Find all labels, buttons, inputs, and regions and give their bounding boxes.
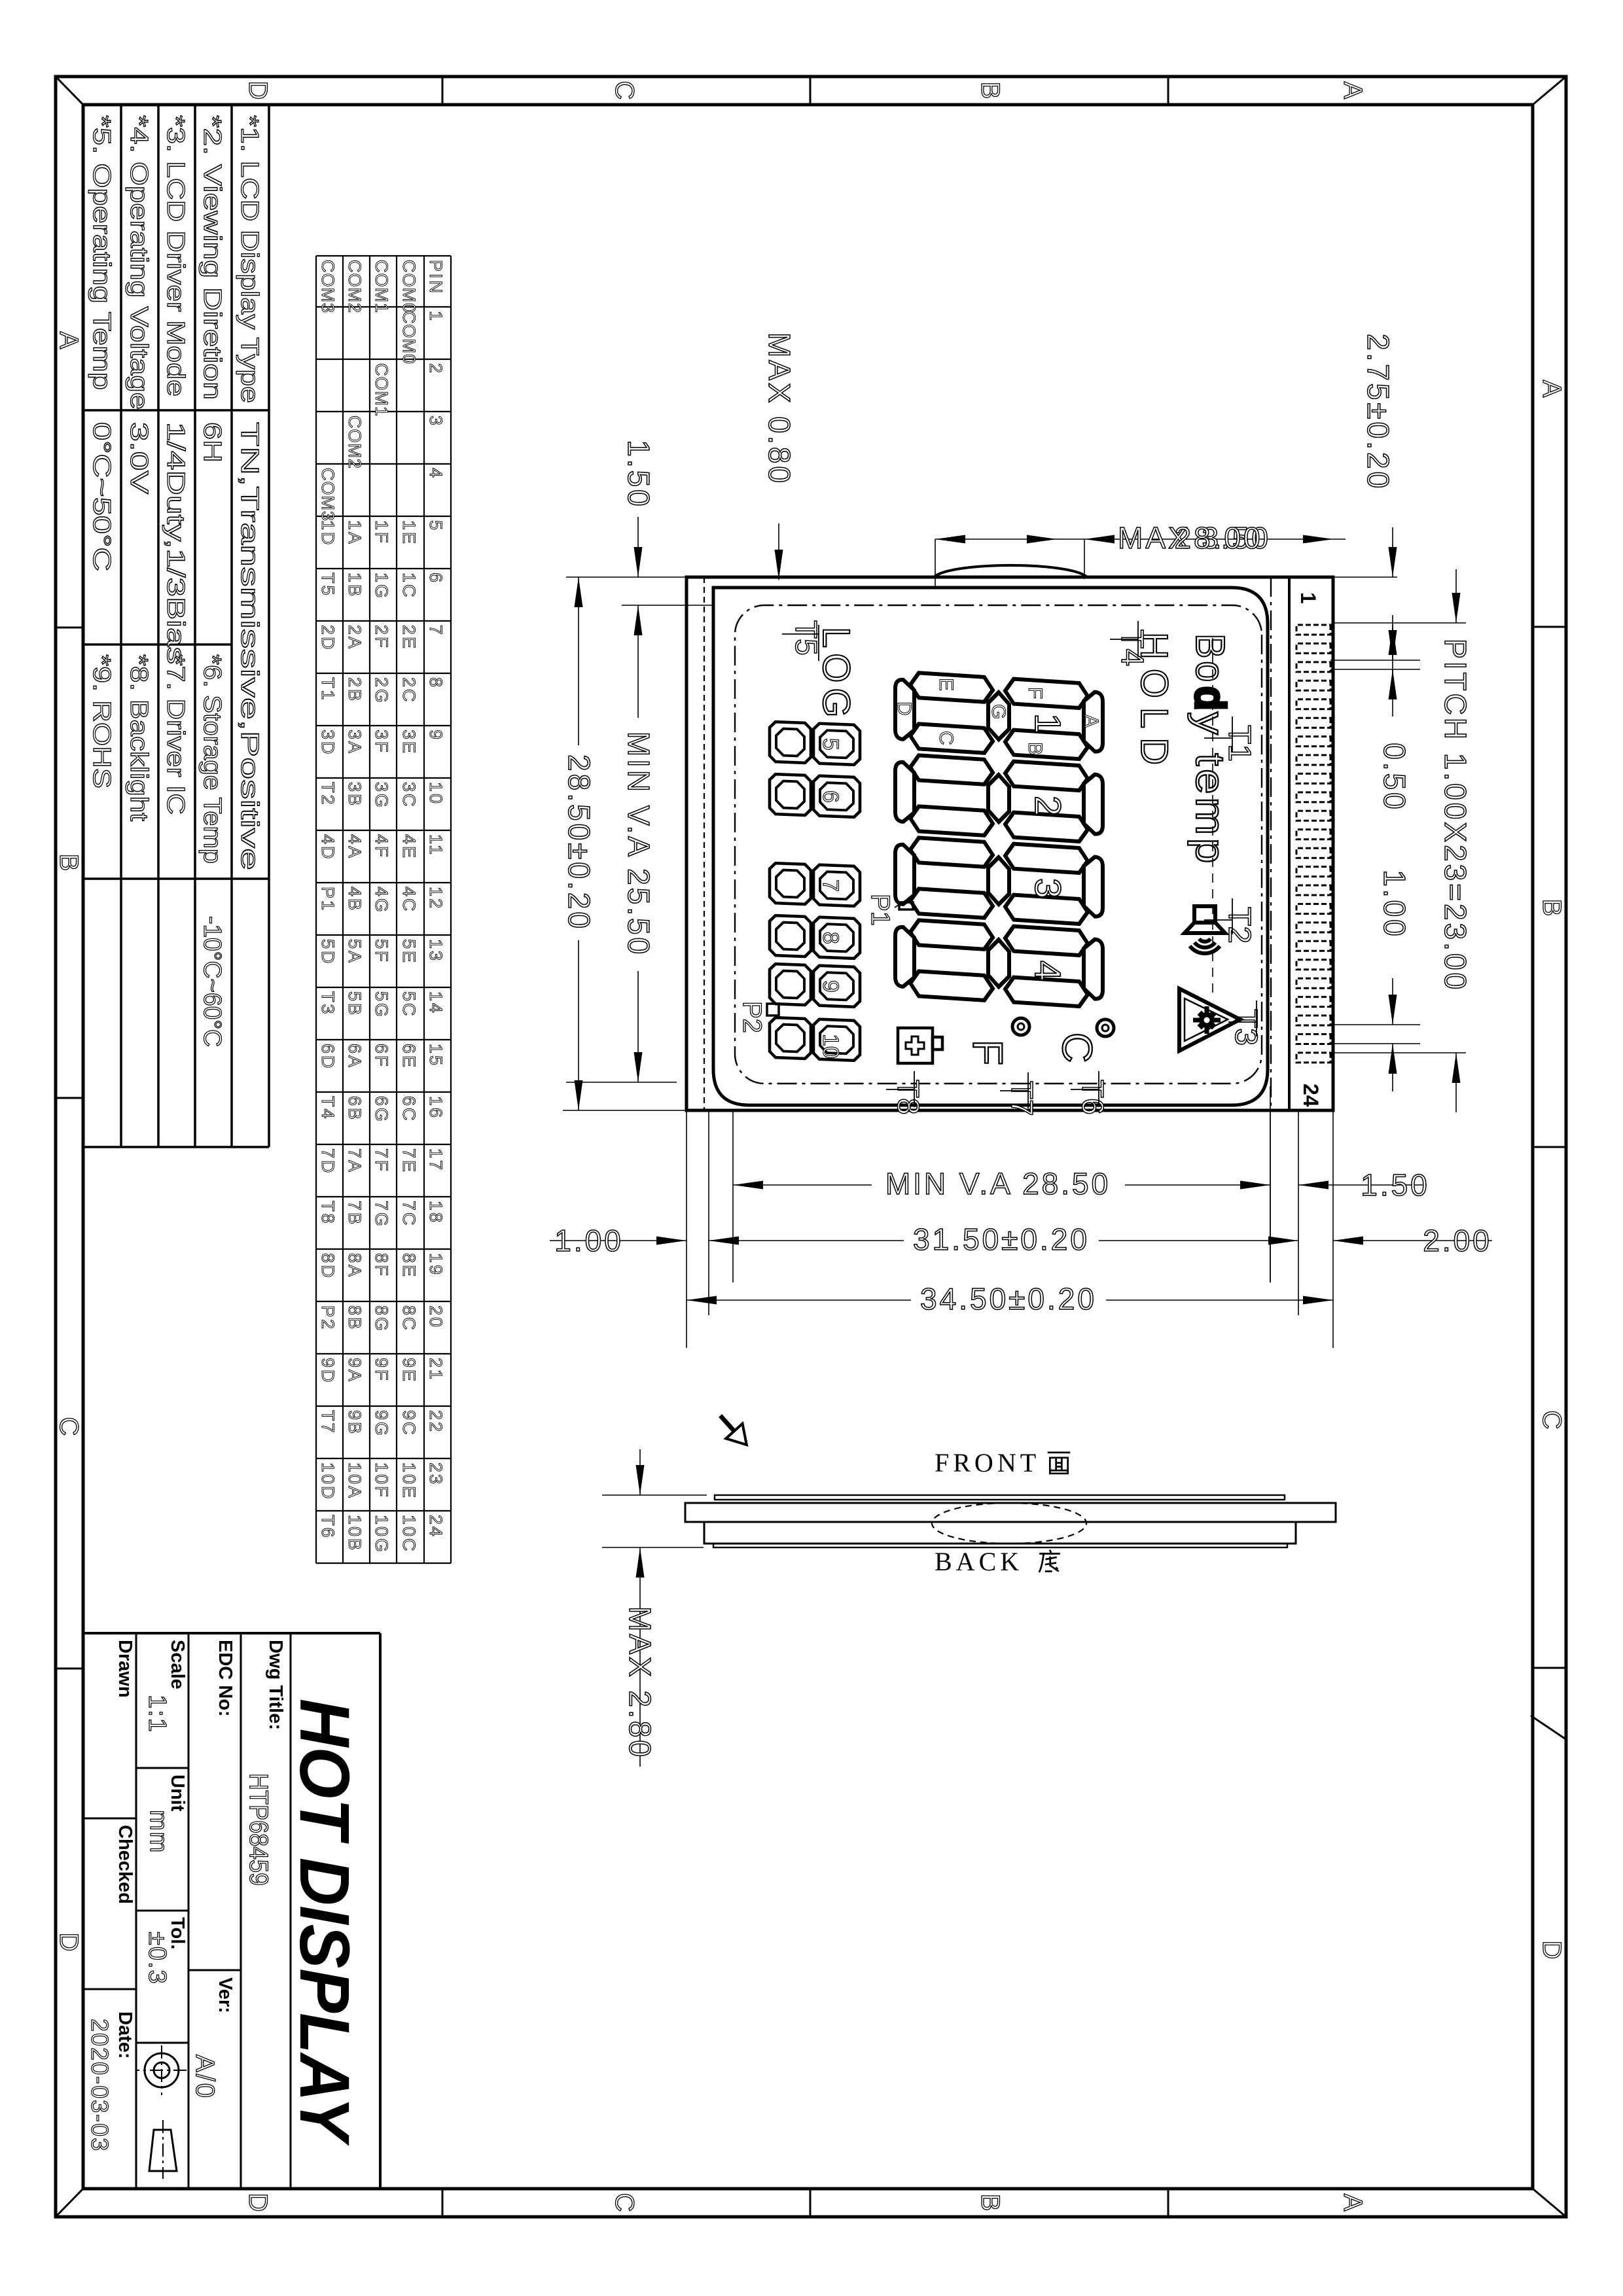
- svg-text:*5. Operating Temp: *5. Operating Temp: [88, 115, 115, 390]
- svg-text:4F: 4F: [372, 834, 391, 859]
- svg-text:3F: 3F: [372, 730, 391, 754]
- svg-text:4G: 4G: [372, 887, 391, 914]
- svg-text:COM2: COM2: [345, 260, 365, 313]
- svg-text:7G: 7G: [372, 1201, 391, 1228]
- svg-text:A/0: A/0: [190, 2055, 219, 2100]
- svg-text:T1: T1: [318, 677, 338, 702]
- svg-text:34.50±0.20: 34.50±0.20: [920, 1282, 1097, 1316]
- svg-text:*3. LCD Driver Mode: *3. LCD Driver Mode: [162, 115, 189, 397]
- svg-text:6H: 6H: [198, 422, 226, 463]
- svg-text:T7: T7: [1005, 1081, 1039, 1116]
- svg-text:3: 3: [1027, 878, 1069, 898]
- svg-text:31.50±0.20: 31.50±0.20: [913, 1222, 1090, 1256]
- svg-text:1: 1: [426, 311, 446, 323]
- svg-text:15: 15: [426, 1044, 446, 1067]
- svg-text:mm: mm: [145, 1810, 172, 1854]
- svg-text:B: B: [1537, 899, 1566, 917]
- svg-text:5: 5: [818, 738, 843, 751]
- svg-text:19: 19: [426, 1253, 446, 1277]
- svg-text:HTP68459: HTP68459: [244, 1773, 273, 1886]
- svg-text:1A: 1A: [345, 520, 365, 546]
- svg-text:MIN V.A 25.50: MIN V.A 25.50: [622, 732, 656, 957]
- svg-text:Drawn: Drawn: [115, 1640, 135, 1698]
- svg-text:COM0: COM0: [399, 311, 419, 364]
- svg-text:Ver:: Ver:: [215, 1977, 236, 2013]
- svg-text:10: 10: [426, 782, 446, 805]
- svg-text:24: 24: [1299, 1084, 1323, 1107]
- svg-text:EDC No:: EDC No:: [215, 1640, 236, 1717]
- svg-text:2: 2: [426, 363, 446, 375]
- svg-text:4B: 4B: [345, 887, 365, 912]
- svg-text:1F: 1F: [372, 520, 391, 545]
- svg-text:T5: T5: [318, 573, 338, 597]
- svg-text:20: 20: [426, 1305, 446, 1329]
- svg-text:0°C~50°C: 0°C~50°C: [88, 422, 115, 571]
- svg-text:9G: 9G: [372, 1410, 391, 1438]
- svg-text:MAX 2.80: MAX 2.80: [623, 1606, 657, 1759]
- svg-text:2E: 2E: [399, 625, 419, 650]
- svg-text:HOT DISPLAY: HOT DISPLAY: [285, 1699, 365, 2146]
- svg-text:T3: T3: [318, 991, 338, 1016]
- svg-text:T7: T7: [318, 1410, 338, 1435]
- svg-text:*8. Backlight: *8. Backlight: [125, 654, 152, 822]
- svg-text:6G: 6G: [372, 1096, 391, 1123]
- svg-text:24: 24: [426, 1515, 446, 1538]
- svg-text:7A: 7A: [345, 1148, 365, 1174]
- svg-text:1.00: 1.00: [1378, 870, 1412, 939]
- svg-text:COM0: COM0: [399, 260, 419, 313]
- svg-text:2G: 2G: [372, 677, 391, 705]
- svg-text:4E: 4E: [399, 834, 419, 860]
- svg-text:D: D: [243, 81, 272, 100]
- svg-text:8A: 8A: [345, 1253, 365, 1279]
- svg-text:16: 16: [426, 1096, 446, 1120]
- svg-text:T2: T2: [318, 782, 338, 807]
- svg-text:Bo: Bo: [1187, 633, 1232, 684]
- svg-text:B: B: [976, 82, 1005, 99]
- svg-text:28.50±0.20: 28.50±0.20: [562, 754, 596, 931]
- svg-text:7: 7: [818, 879, 843, 892]
- svg-text:5B: 5B: [345, 991, 365, 1017]
- svg-text:10A: 10A: [345, 1462, 365, 1500]
- svg-text:5E: 5E: [399, 939, 419, 964]
- svg-text:1.50: 1.50: [1361, 1168, 1430, 1202]
- svg-text:3E: 3E: [399, 730, 419, 755]
- svg-text:P2: P2: [738, 1001, 766, 1033]
- svg-text:8: 8: [818, 932, 843, 944]
- svg-text:13: 13: [426, 939, 446, 963]
- svg-text:6A: 6A: [345, 1044, 365, 1069]
- svg-text:1: 1: [1296, 592, 1320, 604]
- svg-text:7: 7: [426, 625, 446, 637]
- svg-text:2B: 2B: [345, 677, 365, 703]
- svg-text:±0.3: ±0.3: [143, 1932, 171, 1985]
- svg-text:2C: 2C: [399, 677, 419, 704]
- svg-text:6F: 6F: [372, 1044, 391, 1069]
- svg-text:5C: 5C: [399, 991, 419, 1018]
- svg-text:Date:: Date:: [115, 2011, 135, 2059]
- svg-text:T8: T8: [891, 1080, 925, 1115]
- svg-text:1C: 1C: [399, 573, 419, 599]
- svg-text:B: B: [54, 854, 83, 872]
- svg-text:C: C: [1054, 1033, 1101, 1063]
- svg-text:6E: 6E: [399, 1044, 419, 1069]
- svg-text:Dwg Title:: Dwg Title:: [265, 1640, 286, 1730]
- svg-text:C: C: [1537, 1411, 1566, 1430]
- svg-text:F: F: [1024, 687, 1046, 699]
- svg-text:TN,Transmissive,Positive: TN,Transmissive,Positive: [236, 422, 263, 870]
- svg-text:T6: T6: [1076, 1080, 1110, 1115]
- svg-text:9A: 9A: [345, 1358, 365, 1383]
- svg-text:1G: 1G: [372, 573, 391, 600]
- svg-text:A: A: [1080, 715, 1102, 728]
- svg-text:3G: 3G: [372, 782, 391, 809]
- svg-text:T8: T8: [318, 1201, 338, 1226]
- svg-text:T1: T1: [1222, 725, 1257, 762]
- svg-text:P2: P2: [318, 1305, 338, 1331]
- svg-text:4D: 4D: [318, 834, 338, 861]
- svg-text:11: 11: [426, 834, 446, 857]
- svg-text:C: C: [54, 1417, 83, 1436]
- svg-text:*1. LCD Display Type: *1. LCD Display Type: [236, 115, 263, 403]
- svg-text:C: C: [610, 2193, 639, 2212]
- svg-text:4C: 4C: [399, 887, 419, 913]
- svg-text:*9. ROHS: *9. ROHS: [88, 654, 115, 788]
- svg-text:18: 18: [426, 1201, 446, 1224]
- svg-text:MAX 0.80: MAX 0.80: [762, 332, 796, 486]
- svg-text:7C: 7C: [399, 1201, 419, 1227]
- svg-text:8B: 8B: [345, 1305, 365, 1331]
- svg-text:10: 10: [818, 1034, 843, 1059]
- svg-text:P1: P1: [318, 887, 338, 912]
- svg-text:1: 1: [1027, 713, 1069, 733]
- svg-text:9: 9: [426, 730, 446, 741]
- svg-text:8D: 8D: [318, 1253, 338, 1280]
- svg-text:2.75±0.20: 2.75±0.20: [1361, 334, 1395, 491]
- svg-text:2: 2: [1027, 796, 1069, 816]
- svg-text:D: D: [243, 2193, 272, 2212]
- svg-text:T2: T2: [1222, 907, 1257, 944]
- svg-text:B: B: [1024, 742, 1046, 755]
- svg-text:9D: 9D: [318, 1358, 338, 1385]
- svg-text:21: 21: [426, 1358, 446, 1381]
- svg-text:3.0V: 3.0V: [125, 422, 152, 495]
- svg-text:5A: 5A: [345, 939, 365, 964]
- svg-text:A: A: [1338, 2194, 1367, 2212]
- svg-text:8F: 8F: [372, 1253, 391, 1278]
- svg-text:PITCH 1.00X23=23.00: PITCH 1.00X23=23.00: [1438, 639, 1472, 992]
- svg-text:G: G: [988, 704, 1009, 719]
- svg-text:COM1: COM1: [372, 260, 391, 313]
- svg-text:17: 17: [426, 1148, 446, 1172]
- svg-text:9: 9: [818, 980, 843, 993]
- svg-text:7D: 7D: [318, 1148, 338, 1175]
- svg-text:4: 4: [1027, 961, 1069, 981]
- svg-text:*7. Driver IC: *7. Driver IC: [162, 654, 189, 815]
- svg-text:8: 8: [426, 677, 446, 689]
- svg-text:C: C: [935, 731, 957, 745]
- svg-text:22: 22: [426, 1410, 446, 1434]
- svg-text:10F: 10F: [372, 1462, 391, 1499]
- svg-text:9C: 9C: [399, 1410, 419, 1437]
- svg-text:MIN V.A 28.50: MIN V.A 28.50: [885, 1167, 1111, 1201]
- svg-text:3A: 3A: [345, 730, 365, 755]
- svg-text:28.00: 28.00: [1174, 521, 1262, 555]
- svg-text:23: 23: [426, 1462, 446, 1486]
- svg-text:5D: 5D: [318, 939, 338, 966]
- svg-text:7F: 7F: [372, 1148, 391, 1173]
- svg-text:*6. Storage Temp: *6. Storage Temp: [198, 654, 226, 864]
- svg-text:1B: 1B: [345, 573, 365, 598]
- svg-text:6: 6: [818, 790, 843, 803]
- svg-text:6C: 6C: [399, 1096, 419, 1123]
- svg-text:5F: 5F: [372, 939, 391, 964]
- svg-text:1:1: 1:1: [143, 1695, 171, 1733]
- svg-text:9E: 9E: [399, 1358, 419, 1383]
- svg-text:*2. Viewing Diretion: *2. Viewing Diretion: [198, 115, 226, 400]
- svg-text:8G: 8G: [372, 1305, 391, 1333]
- svg-text:2.00: 2.00: [1423, 1224, 1492, 1258]
- svg-text:1.00: 1.00: [554, 1224, 624, 1258]
- svg-text:FRONT: FRONT: [935, 1448, 1040, 1477]
- svg-text:D: D: [54, 1933, 83, 1952]
- svg-text:Scale: Scale: [167, 1640, 188, 1689]
- svg-text:A: A: [1338, 82, 1367, 99]
- svg-text:T4: T4: [318, 1096, 338, 1121]
- svg-text:A: A: [1537, 380, 1566, 398]
- svg-text:E: E: [935, 678, 957, 691]
- svg-text:9F: 9F: [372, 1358, 391, 1383]
- svg-text:PIN: PIN: [426, 260, 446, 295]
- svg-text:7E: 7E: [399, 1148, 419, 1174]
- svg-text:5: 5: [426, 520, 446, 532]
- svg-text:COM2: COM2: [345, 415, 365, 469]
- svg-text:1/4Duty,1/3Bias: 1/4Duty,1/3Bias: [162, 422, 189, 664]
- svg-text:D: D: [1537, 1941, 1566, 1960]
- svg-text:2A: 2A: [345, 625, 365, 650]
- svg-text:D: D: [893, 701, 915, 716]
- svg-text:4A: 4A: [345, 834, 365, 860]
- svg-text:0.50: 0.50: [1378, 743, 1412, 812]
- svg-text:COM3: COM3: [318, 468, 338, 521]
- svg-text:1D: 1D: [318, 520, 338, 547]
- svg-text:C: C: [610, 81, 639, 100]
- svg-text:F: F: [964, 1040, 1011, 1065]
- svg-text:10D: 10D: [318, 1462, 338, 1501]
- svg-text:3C: 3C: [399, 782, 419, 809]
- svg-text:6D: 6D: [318, 1044, 338, 1070]
- svg-text:7B: 7B: [345, 1201, 365, 1226]
- svg-text:8C: 8C: [399, 1305, 419, 1332]
- svg-text:Checked: Checked: [115, 1825, 135, 1904]
- svg-text:1.50: 1.50: [622, 440, 656, 509]
- svg-text:B: B: [976, 2194, 1005, 2212]
- svg-text:9B: 9B: [345, 1410, 365, 1436]
- svg-text:BACK: BACK: [935, 1547, 1023, 1576]
- svg-text:T4: T4: [1115, 629, 1149, 666]
- svg-text:6: 6: [426, 573, 446, 584]
- svg-text:10B: 10B: [345, 1515, 365, 1552]
- svg-text:10E: 10E: [399, 1462, 419, 1500]
- svg-text:1E: 1E: [399, 520, 419, 546]
- svg-text:-10°C~60°C: -10°C~60°C: [198, 916, 226, 1047]
- svg-text:*4. Operating Voltage: *4. Operating Voltage: [125, 115, 152, 410]
- svg-text:A: A: [54, 332, 83, 349]
- svg-text:d: d: [1187, 687, 1232, 709]
- svg-text:12: 12: [426, 887, 446, 910]
- svg-text:COM3: COM3: [318, 260, 338, 313]
- svg-text:8E: 8E: [399, 1253, 419, 1279]
- svg-text:P1: P1: [866, 894, 895, 926]
- svg-text:2F: 2F: [372, 625, 391, 650]
- svg-text:3: 3: [426, 415, 446, 427]
- svg-text:5G: 5G: [372, 991, 391, 1019]
- svg-text:2020-03-03: 2020-03-03: [86, 2019, 113, 2152]
- svg-text:T6: T6: [318, 1515, 338, 1540]
- svg-text:10C: 10C: [399, 1515, 419, 1553]
- svg-text:6B: 6B: [345, 1096, 365, 1122]
- svg-text:2D: 2D: [318, 625, 338, 652]
- svg-text:10G: 10G: [372, 1515, 391, 1554]
- svg-text:3B: 3B: [345, 782, 365, 807]
- svg-text:3D: 3D: [318, 730, 338, 756]
- svg-text:COM1: COM1: [372, 363, 391, 417]
- svg-text:4: 4: [426, 468, 446, 480]
- svg-text:Unit: Unit: [167, 1775, 188, 1812]
- svg-text:14: 14: [426, 991, 446, 1015]
